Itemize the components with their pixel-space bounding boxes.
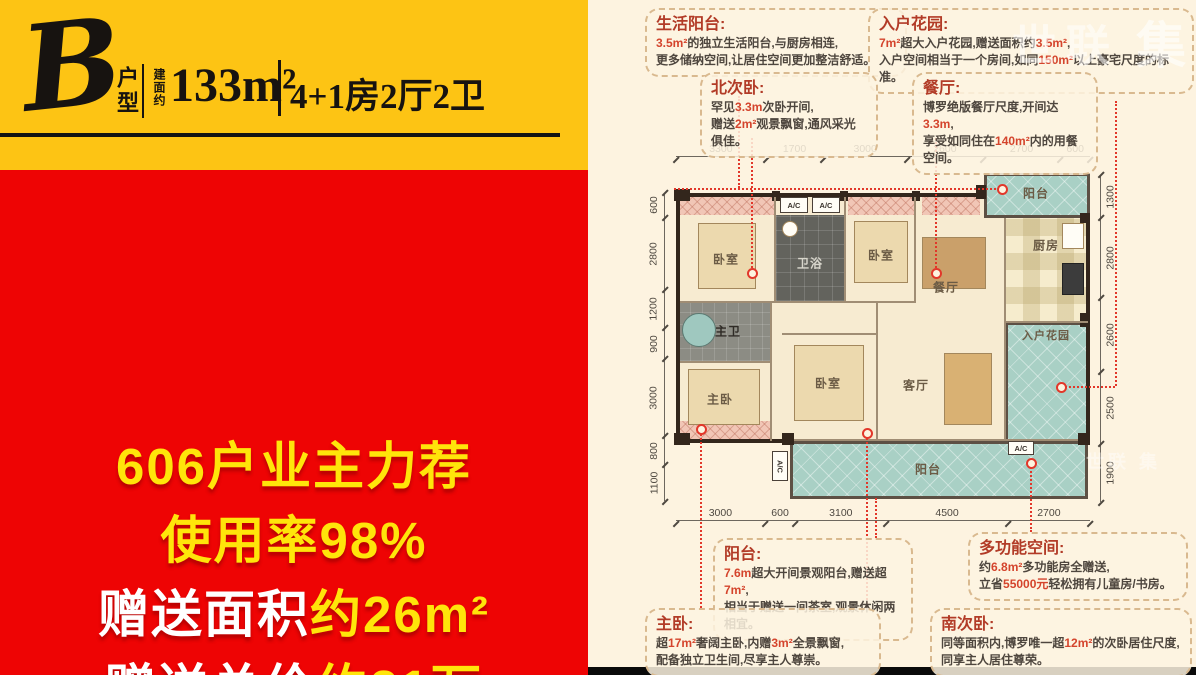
watermark-text: 集 bbox=[1139, 452, 1161, 472]
callout-line: 约6.8m²多功能房全赠送, bbox=[979, 559, 1177, 576]
wall-block bbox=[782, 433, 794, 445]
callout-title: 阳台: bbox=[724, 545, 902, 565]
callout-line: 享受如同住在140m²内的用餐空间。 bbox=[923, 133, 1087, 167]
callout-title: 主卧: bbox=[656, 615, 870, 635]
ac-unit: A/C bbox=[780, 197, 808, 213]
dimension-segment: 2600 bbox=[1101, 298, 1121, 373]
room-label-living: 客厅 bbox=[903, 377, 929, 394]
stove bbox=[1062, 263, 1084, 295]
window-line bbox=[792, 439, 1088, 441]
dimension-value: 800 bbox=[648, 442, 660, 460]
dimension-value: 2700 bbox=[1037, 507, 1060, 519]
callout-body: 3.5m²的独立生活阳台,与厨房相连,更多储纳空间,让居住空间更加整洁舒适。 bbox=[656, 35, 896, 69]
header-underline bbox=[0, 133, 560, 137]
callout-line: 赠送2m²观景飘窗,通风采光俱佳。 bbox=[711, 116, 867, 150]
dimension-value: 1200 bbox=[648, 297, 660, 320]
dimension-segment: 3000 bbox=[644, 359, 664, 436]
leader-line bbox=[700, 430, 702, 608]
kitchen-sink bbox=[1062, 223, 1084, 249]
partition bbox=[844, 197, 846, 303]
partition bbox=[782, 333, 878, 335]
dimension-value: 1100 bbox=[648, 472, 660, 495]
leader-dot bbox=[862, 428, 873, 439]
callout-line: 罕见3.3m次卧开间, bbox=[711, 99, 867, 116]
leader-line bbox=[1030, 464, 1032, 532]
dimension-value: 4500 bbox=[935, 507, 958, 519]
dimension-value: 2500 bbox=[1105, 397, 1117, 420]
dimension-segment: 1100 bbox=[644, 465, 664, 501]
callout-body: 同等面积内,博罗唯一超12m²的次卧居住尺度,同享主人居住尊荣。 bbox=[941, 635, 1181, 669]
watermark-text: 世联 bbox=[1086, 452, 1130, 472]
watermark: 世联 bbox=[1012, 10, 1120, 74]
promo-line: 赠送总价约21万 bbox=[105, 647, 484, 675]
callout-line: 同等面积内,博罗唯一超12m²的次卧居住尺度, bbox=[941, 635, 1181, 652]
partition bbox=[876, 301, 878, 441]
callout-south-bedroom: 南次卧: 同等面积内,博罗唯一超12m²的次卧居住尺度,同享主人居住尊荣。 bbox=[930, 608, 1192, 675]
dimension-value: 3000 bbox=[709, 507, 732, 519]
callout-line: 配备独立卫生间,尽享主人尊崇。 bbox=[656, 652, 870, 669]
dimensions-bottom: 3000600310045002700 bbox=[676, 504, 1090, 521]
partition bbox=[914, 197, 916, 303]
room-label-dining: 餐厅 bbox=[933, 279, 959, 296]
callout-line: 3.5m²的独立生活阳台,与厨房相连, bbox=[656, 35, 896, 52]
callout-line: 7.6m超大开间景观阳台,赠送超7m², bbox=[724, 565, 902, 599]
dimension-segment: 1200 bbox=[644, 290, 664, 328]
shower bbox=[682, 313, 716, 347]
callout-title: 北次卧: bbox=[711, 79, 867, 99]
leader-line bbox=[674, 188, 1000, 190]
dimension-segment: 4500 bbox=[886, 504, 1007, 520]
leader-dot bbox=[931, 268, 942, 279]
dimension-segment: 3000 bbox=[676, 504, 765, 520]
leader-dot bbox=[696, 424, 707, 435]
callout-line: 立省55000元轻松拥有儿童房/书房。 bbox=[979, 576, 1177, 593]
sofa bbox=[944, 353, 992, 425]
callout-north-bedroom: 北次卧: 罕见3.3m次卧开间,赠送2m²观景飘窗,通风采光俱佳。 bbox=[700, 72, 878, 158]
callout-master-bedroom: 主卧: 超17m²奢阔主卧,内赠3m²全景飘窗,配备独立卫生间,尽享主人尊崇。 bbox=[645, 608, 881, 675]
flyer-root: B 户型 建面约 133m² 4+1房2厅2卫 606户业主力荐使用率98%赠送… bbox=[0, 0, 1196, 675]
callout-line: 更多储纳空间,让居住空间更加整洁舒适。 bbox=[656, 52, 896, 69]
leader-dot bbox=[1026, 458, 1037, 469]
room-label-entry-garden: 入户花园 bbox=[1022, 327, 1070, 343]
leader-dot bbox=[1056, 382, 1067, 393]
dimension-segment: 900 bbox=[644, 328, 664, 359]
dimension-segment: 2800 bbox=[1101, 218, 1121, 297]
partition bbox=[680, 361, 772, 363]
room-layout-text: 4+1房2厅2卫 bbox=[290, 68, 485, 119]
callout-body: 超17m²奢阔主卧,内赠3m²全景飘窗,配备独立卫生间,尽享主人尊崇。 bbox=[656, 635, 870, 669]
dimension-segment: 2800 bbox=[644, 218, 664, 290]
dimension-segment: 600 bbox=[644, 193, 664, 218]
dimension-value: 600 bbox=[648, 197, 660, 215]
dimension-value: 900 bbox=[648, 335, 660, 353]
callout-title: 多功能空间: bbox=[979, 539, 1177, 559]
callout-line: 同享主人居住尊荣。 bbox=[941, 652, 1181, 669]
room-label-kitchen: 厨房 bbox=[1033, 237, 1059, 254]
wall-segment bbox=[676, 193, 680, 443]
room-label-master-bath: 主卫 bbox=[715, 323, 741, 340]
leader-line bbox=[1062, 386, 1115, 388]
unit-type-label: 户型 bbox=[110, 66, 142, 116]
promo-panel: 606户业主力荐使用率98%赠送面积约26m²赠送总价约21万使用面积约130m… bbox=[0, 170, 588, 675]
dimension-value: 3000 bbox=[648, 386, 660, 409]
ac-unit: A/C bbox=[812, 197, 840, 213]
room-label-bedroom-ne: 卧室 bbox=[868, 247, 894, 264]
callout-title: 生活阳台: bbox=[656, 15, 896, 35]
bay-window bbox=[848, 195, 914, 215]
promo-line: 赠送面积约26m² bbox=[98, 573, 490, 647]
partition bbox=[774, 197, 776, 303]
toilet bbox=[782, 221, 798, 237]
wall-segment bbox=[676, 439, 792, 443]
dimension-value: 3100 bbox=[829, 507, 852, 519]
room-label-bath: 卫浴 bbox=[797, 255, 823, 272]
dimension-segment: 2700 bbox=[1008, 504, 1090, 520]
partition bbox=[680, 301, 916, 303]
callout-title: 餐厅: bbox=[923, 79, 1087, 99]
dimension-segment: 1300 bbox=[1101, 175, 1121, 218]
left-column: B 户型 建面约 133m² 4+1房2厅2卫 606户业主力荐使用率98%赠送… bbox=[0, 0, 588, 675]
partition bbox=[770, 303, 772, 441]
dimension-value: 600 bbox=[771, 507, 789, 519]
callout-body: 博罗绝版餐厅尺度,开间达3.3m,享受如同住在140m²内的用餐空间。 bbox=[923, 99, 1087, 167]
callout-line: 超17m²奢阔主卧,内赠3m²全景飘窗, bbox=[656, 635, 870, 652]
leader-line bbox=[751, 138, 753, 272]
wall-block bbox=[1080, 313, 1090, 327]
dimension-segment: 600 bbox=[765, 504, 796, 520]
promo-line: 使用率98% bbox=[160, 499, 427, 573]
leader-dot bbox=[747, 268, 758, 279]
callout-multifunction: 多功能空间: 约6.8m²多功能房全赠送,立省55000元轻松拥有儿童房/书房。 bbox=[968, 532, 1188, 601]
wall-block bbox=[674, 433, 690, 445]
watermark: 集 bbox=[1136, 6, 1186, 78]
room-label-master-bedroom: 主卧 bbox=[707, 391, 733, 408]
ac-unit: A/C bbox=[772, 451, 788, 481]
promo-lines: 606户业主力荐使用率98%赠送面积约26m²赠送总价约21万使用面积约130m… bbox=[0, 425, 588, 607]
bay-window bbox=[680, 195, 774, 215]
room-label-bedroom-s: 卧室 bbox=[815, 375, 841, 392]
room-label-balcony-bottom: 阳台 bbox=[915, 461, 941, 478]
header-divider bbox=[278, 60, 281, 116]
floor-plan: A/C A/C A/C A/C 阳台 卧室 卫浴 卧室 厨房 餐厅 主卫 主卧 … bbox=[676, 173, 1090, 503]
callout-title: 南次卧: bbox=[941, 615, 1181, 635]
watermark: 世联 集 bbox=[1086, 448, 1161, 474]
dimension-segment: 2500 bbox=[1101, 372, 1121, 444]
promo-line: 606户业主力荐 bbox=[116, 425, 472, 499]
bay-window bbox=[922, 195, 980, 215]
dimensions-left: 6002800120090030008001100 bbox=[644, 193, 665, 501]
leader-dot bbox=[997, 184, 1008, 195]
room-label-balcony-top: 阳台 bbox=[1023, 185, 1049, 202]
callout-line: 博罗绝版餐厅尺度,开间达3.3m, bbox=[923, 99, 1087, 133]
wall-segment bbox=[1086, 216, 1090, 445]
floorplan-panel: 生活阳台: 3.5m²的独立生活阳台,与厨房相连,更多储纳空间,让居住空间更加整… bbox=[588, 0, 1196, 675]
dimension-segment: 800 bbox=[644, 436, 664, 465]
unit-header: B 户型 建面约 133m² 4+1房2厅2卫 bbox=[0, 0, 588, 170]
wall-block bbox=[674, 189, 690, 201]
header-divider bbox=[142, 64, 144, 118]
ac-unit: A/C bbox=[1008, 441, 1034, 455]
callout-body: 罕见3.3m次卧开间,赠送2m²观景飘窗,通风采光俱佳。 bbox=[711, 99, 867, 150]
partition bbox=[1004, 218, 1006, 441]
leader-line bbox=[1115, 101, 1117, 386]
callout-dining: 餐厅: 博罗绝版餐厅尺度,开间达3.3m,享受如同住在140m²内的用餐空间。 bbox=[912, 72, 1098, 175]
wall-block bbox=[1080, 213, 1090, 223]
area-approx-label: 建面约 bbox=[151, 68, 168, 107]
dimension-segment: 3100 bbox=[795, 504, 886, 520]
dimension-value: 2800 bbox=[648, 242, 660, 265]
leader-line bbox=[875, 498, 877, 538]
callout-body: 约6.8m²多功能房全赠送,立省55000元轻松拥有儿童房/书房。 bbox=[979, 559, 1177, 593]
wall-block bbox=[1078, 433, 1090, 445]
room-label-bedroom-nw: 卧室 bbox=[713, 251, 739, 268]
partition bbox=[1006, 321, 1088, 323]
